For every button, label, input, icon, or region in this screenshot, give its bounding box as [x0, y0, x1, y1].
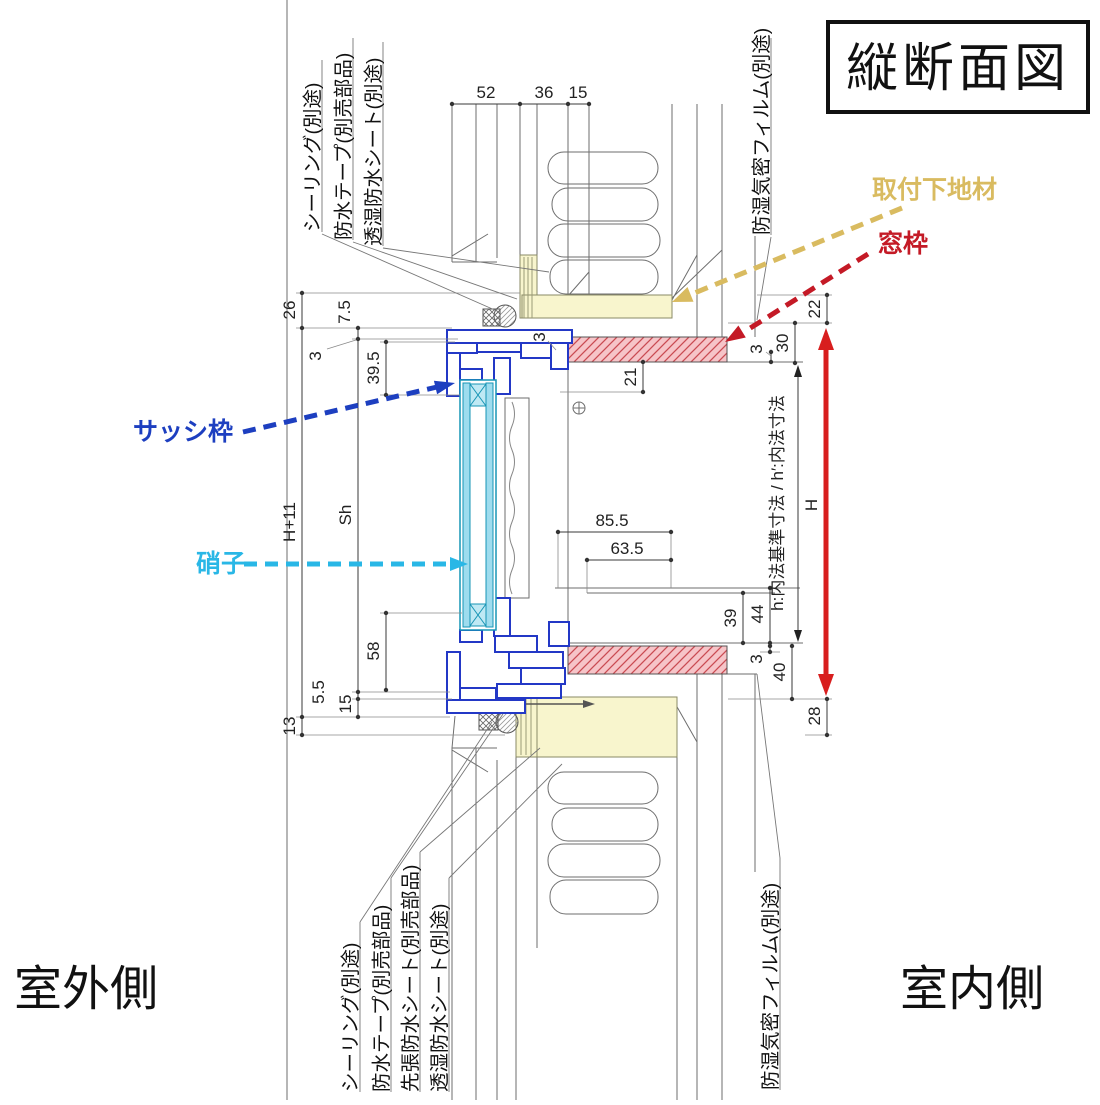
dim-26: 26: [280, 301, 299, 320]
dim-h-plus-11: H+11: [280, 502, 299, 542]
crossed-circle-symbol: [573, 402, 585, 414]
arrowhead-down: [818, 674, 834, 696]
dim-30: 30: [773, 334, 792, 353]
callout-window-frame-label: 窓枠: [878, 229, 928, 258]
callout-mounting-base: 取付下地材: [672, 176, 997, 302]
arrowhead-up: [818, 328, 834, 350]
material-top-sealing: シーリング(別途): [302, 83, 324, 233]
dim-58: 58: [364, 642, 383, 661]
material-labels: シーリング(別途) 防水テープ(別売部品) 透湿防水シート(別途) 防湿気密フィ…: [302, 28, 782, 1092]
material-top-sheet: 透湿防水シート(別途): [363, 58, 385, 247]
arrowhead: [725, 326, 746, 343]
dim-40: 40: [770, 663, 789, 682]
callout-glass: 硝子: [196, 550, 468, 578]
title-block: 縦断面図: [828, 22, 1088, 112]
dim-39: 39: [721, 609, 740, 628]
dim-sh: Sh: [336, 505, 355, 526]
glass-spacer-bottom: [470, 604, 486, 626]
drawing-title: 縦断面図: [846, 40, 1070, 98]
insulation-top: [548, 152, 660, 294]
dim-7-5: 7.5: [335, 300, 354, 324]
dim-15-top: 15: [569, 83, 588, 102]
dim-3-mid: 3: [530, 332, 549, 341]
dim-52: 52: [477, 83, 496, 102]
material-bottom-pre-sheet: 先張防水シート(別売部品): [400, 865, 422, 1093]
material-bottom-tape: 防水テープ(別売部品): [371, 905, 393, 1092]
dim-5-5: 5.5: [309, 680, 328, 704]
material-bottom-sheet: 透湿防水シート(別途): [429, 904, 451, 1093]
dim-h-note: h:内法基準寸法 / h′:内法寸法: [768, 395, 787, 611]
material-top-tape: 防水テープ(別売部品): [333, 53, 355, 240]
dim-21: 21: [621, 368, 640, 387]
outdoor-side-label: 室外側: [14, 963, 158, 1016]
dim-63-5: 63.5: [610, 539, 643, 558]
insulation-bottom: [548, 772, 660, 914]
window-frame-blocks: [568, 337, 727, 674]
dim-3-top-right: 3: [747, 344, 766, 353]
dim-H: H: [802, 499, 821, 511]
material-bottom-sealing: シーリング(別途): [340, 943, 362, 1093]
callout-sash-frame-label: サッシ枠: [133, 418, 233, 446]
glass-spacer-top: [470, 384, 486, 406]
dim-3-left: 3: [306, 351, 325, 360]
callout-mounting-base-label: 取付下地材: [872, 176, 997, 204]
dim-15-left: 15: [336, 695, 355, 714]
material-bottom-film: 防湿気密フィルム(別途): [760, 883, 782, 1090]
dim-13: 13: [280, 717, 299, 736]
material-top-film: 防湿気密フィルム(別途): [751, 28, 773, 235]
dim-85-5: 85.5: [595, 511, 628, 530]
dim-28: 28: [805, 707, 824, 726]
height-arrow: H: [802, 328, 834, 696]
section-drawing: 52 36 15 85.5 63.5 26 7.5 3 39.5 H+11 Sh…: [0, 0, 1100, 1100]
callout-glass-label: 硝子: [196, 550, 246, 578]
dim-39-5: 39.5: [364, 351, 383, 384]
indoor-side-label: 室内側: [900, 963, 1044, 1016]
dim-3-bot-right: 3: [747, 654, 766, 663]
callout-sash-frame: サッシ枠: [133, 381, 455, 446]
dim-36: 36: [535, 83, 554, 102]
dim-22: 22: [805, 300, 824, 319]
screen-frame: [505, 398, 529, 598]
dim-44: 44: [748, 605, 767, 624]
glass-unit: [460, 380, 496, 630]
